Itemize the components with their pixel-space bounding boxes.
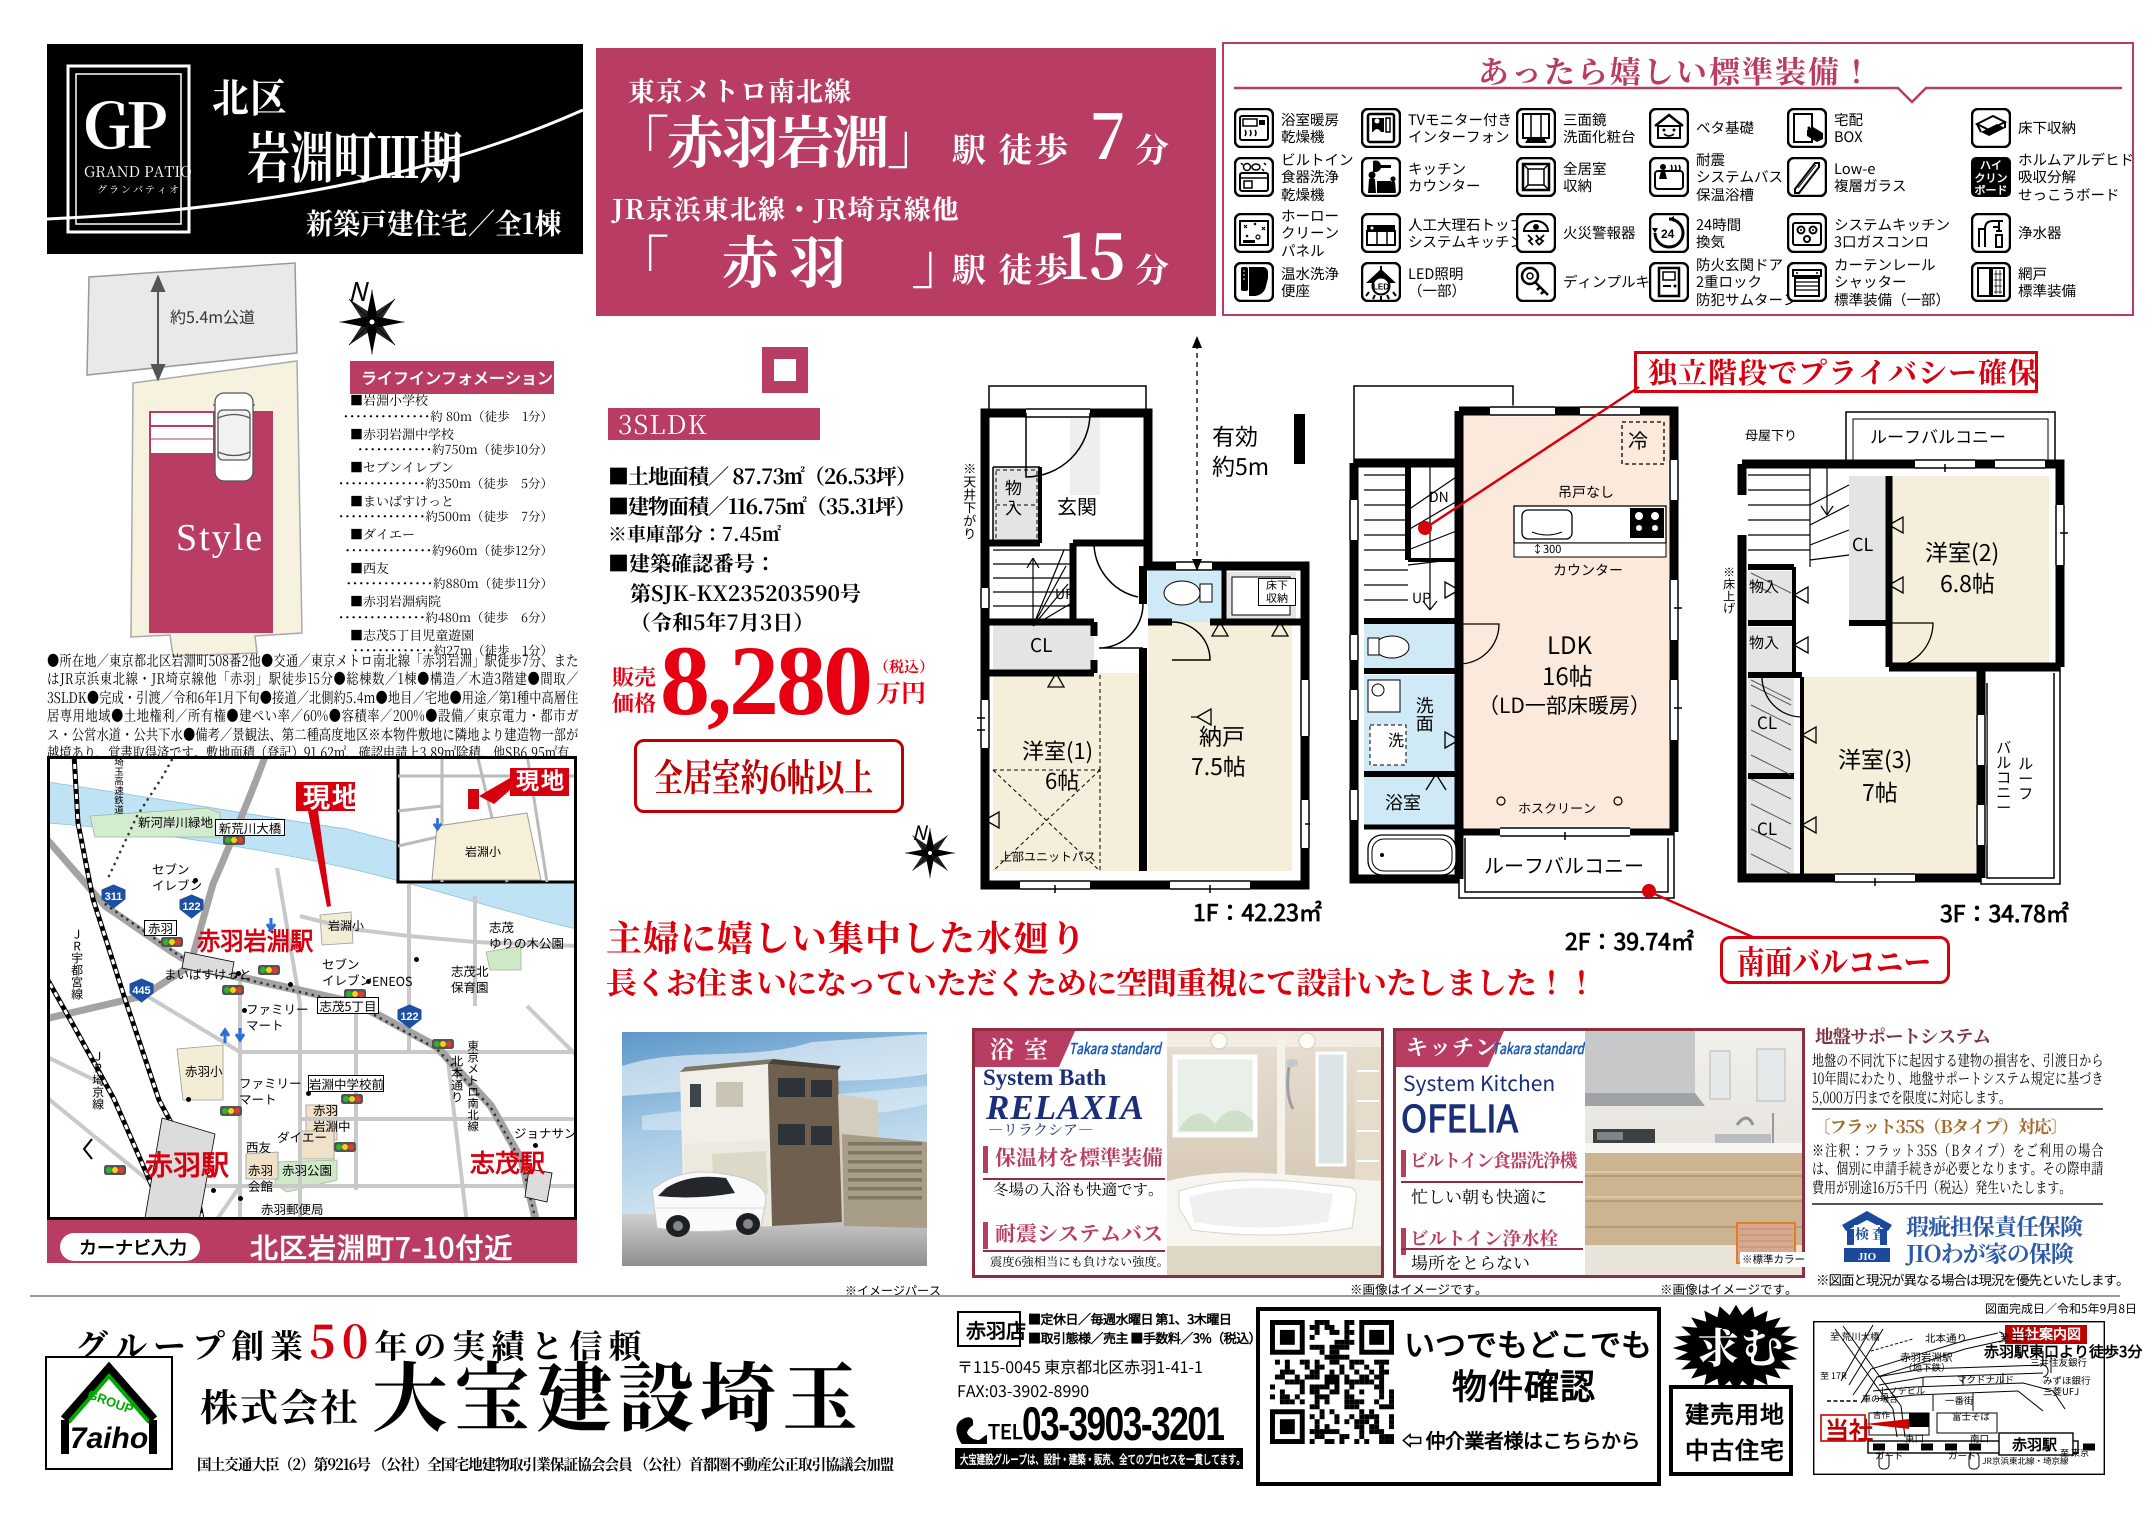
svg-text:445: 445 [132, 985, 150, 997]
svg-text:LED: LED [1373, 283, 1389, 292]
svg-text:7aiho: 7aiho [70, 1422, 148, 1455]
svg-text:311: 311 [105, 891, 123, 903]
svg-text:JIO: JIO [1858, 1251, 1877, 1263]
svg-text:122: 122 [182, 901, 200, 913]
svg-text:24: 24 [1661, 227, 1675, 241]
svg-text:122: 122 [400, 1011, 418, 1023]
